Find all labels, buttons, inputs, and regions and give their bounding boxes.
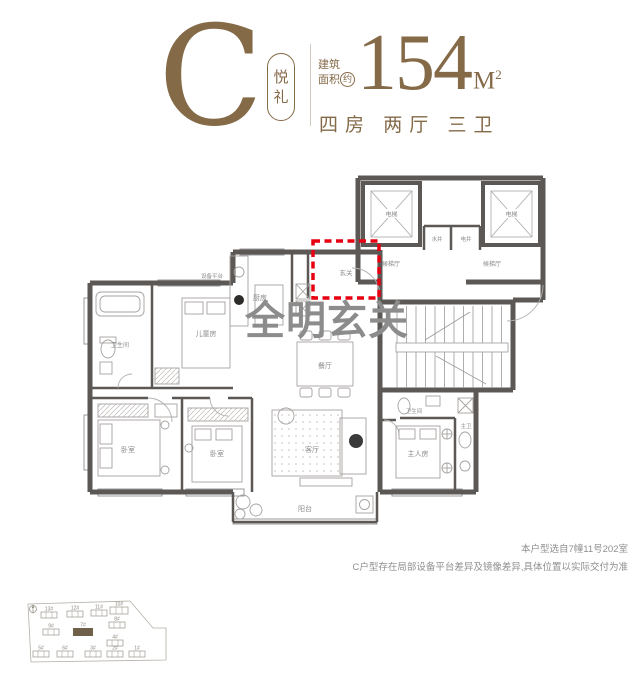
header-divider: [310, 44, 311, 126]
site-building: 9#: [43, 624, 59, 636]
site-building: 10#: [110, 602, 128, 615]
area-prefix-line1: 建筑: [318, 58, 355, 72]
area-value: 154: [357, 30, 471, 97]
site-building: 4#: [107, 635, 123, 647]
room-label-foyer: 玄关: [340, 268, 354, 277]
room-label-bedroom: 卧室: [210, 449, 224, 458]
building-label: 7#: [80, 623, 86, 629]
site-buildings: 13# 12# 11# 10# 9# 7# 8# 4# 5# 6# 3# 2# …: [33, 602, 145, 658]
floor-plan: 电梯 电梯: [80, 170, 546, 556]
disclaimer-line2: C户型存在局部设备平台差异及镜像差异,具体位置以实际交付为准: [352, 559, 628, 577]
compass-icon: [30, 605, 37, 614]
room-label-elevator: 电梯: [505, 211, 517, 219]
site-building: 5#: [33, 646, 49, 658]
elevator-icon: 电梯: [483, 183, 540, 245]
building-label: 3#: [90, 646, 96, 652]
windows: [84, 249, 462, 524]
room-label-living: 客厅: [305, 445, 319, 454]
unit-name-badge: 悦 礼: [267, 53, 295, 121]
unit-name-char: 礼: [273, 90, 288, 105]
area-prefix-line2: 面积约: [318, 72, 355, 87]
building-label: 4#: [112, 635, 118, 641]
building-label: 6#: [62, 646, 68, 652]
room-label-elevator: 电梯: [385, 211, 397, 219]
site-building: 6#: [57, 646, 73, 658]
site-building: 3#: [85, 646, 101, 658]
disclaimer: 本户型选自7幢11号202室 C户型存在局部设备平台差异及镜像差异,具体位置以实…: [352, 541, 628, 577]
layout-description: 四房 两厅 三卫: [319, 110, 500, 137]
site-building: 1#: [129, 646, 145, 658]
building-label: 2#: [112, 646, 118, 652]
room-label-dining: 餐厅: [318, 361, 332, 370]
building-label: 5#: [38, 646, 44, 652]
building-label: 12#: [71, 606, 80, 612]
unit-name-char: 悦: [273, 70, 288, 85]
building-label: 11#: [95, 605, 103, 611]
site-building: 2#: [107, 646, 123, 658]
room-label-balcony: 阳台: [298, 504, 312, 513]
room-label-elevator-hall: 候梯厅: [483, 260, 501, 268]
site-plan: 13# 12# 11# 10# 9# 7# 8# 4# 5# 6# 3# 2# …: [18, 591, 170, 669]
site-building: 12#: [67, 606, 83, 618]
room-label-master-room: 主人房: [408, 449, 429, 458]
highlight-label: 全明玄关: [244, 298, 409, 343]
room-label-kids-room: 儿童房: [196, 329, 217, 338]
circled-approx-char: 约: [340, 72, 355, 87]
building-label: 10#: [115, 602, 124, 608]
room-label-master-bath: 主卫: [460, 422, 472, 430]
stairs: [396, 306, 508, 388]
building-label: 13#: [45, 607, 54, 613]
room-label-elevator-hall: 候梯厅: [382, 260, 400, 268]
area-prefix-label: 建筑 面积约: [318, 58, 355, 87]
area-unit: M2: [473, 68, 502, 93]
building-label: 1#: [134, 646, 140, 652]
building-label: 8#: [114, 617, 120, 623]
room-label-bathroom: 卫生间: [111, 341, 129, 349]
room-label-bathroom: 卫生间: [406, 407, 423, 415]
unit-type-letter: C: [158, 8, 264, 146]
area-block: 建筑 面积约 154 M2: [318, 30, 502, 97]
room-label-equipment-platform: 设备平台: [201, 272, 224, 280]
floorplan-poster: C 悦 礼 建筑 面积约 154 M2 四房 两厅 三卫: [0, 0, 640, 677]
building-label: 9#: [48, 624, 54, 630]
disclaimer-line1: 本户型选自7幢11号202室: [352, 541, 628, 559]
room-label-bedroom: 卧室: [121, 445, 135, 454]
site-building: 13#: [41, 607, 57, 619]
site-building: 11#: [91, 605, 107, 617]
elevator-icon: 电梯: [363, 183, 420, 245]
site-building: 8#: [109, 617, 125, 629]
site-building-highlighted: 7#: [73, 623, 93, 637]
room-label-water-shaft: 水井: [431, 235, 443, 243]
room-label-electric-shaft: 电井: [460, 235, 472, 243]
